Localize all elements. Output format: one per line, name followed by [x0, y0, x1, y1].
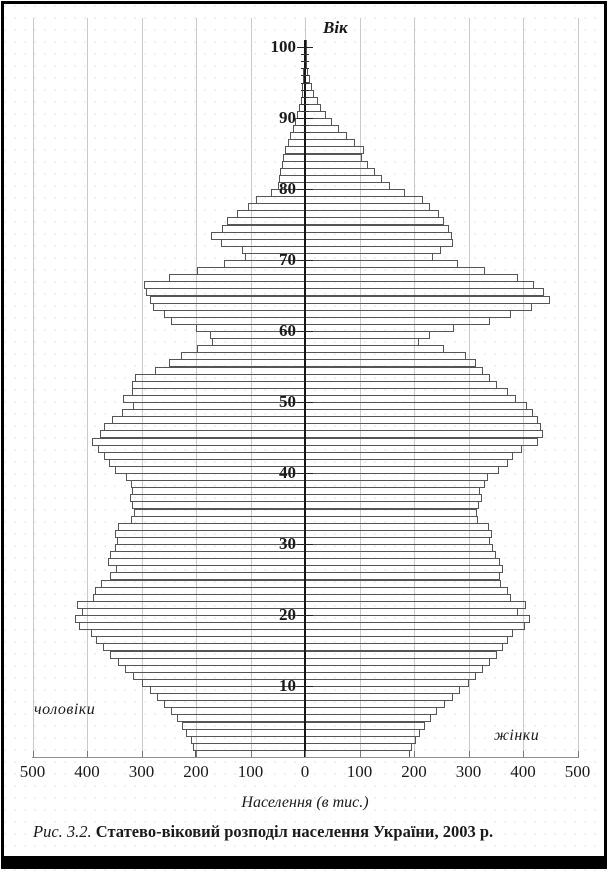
age-tick-label: 70	[246, 250, 296, 270]
women-bar	[305, 494, 482, 502]
men-bar	[110, 651, 305, 659]
women-bar	[305, 196, 423, 204]
women-bar	[305, 388, 508, 396]
age-decade-tick	[297, 331, 313, 332]
men-bar	[103, 643, 305, 651]
x-axis-tick	[578, 751, 579, 757]
men-bar	[91, 629, 305, 637]
men-bar	[193, 743, 305, 751]
x-axis-tick	[142, 751, 143, 757]
women-bar	[305, 530, 492, 538]
men-bar	[104, 423, 305, 431]
women-bar	[305, 622, 525, 630]
men-bar	[118, 658, 305, 666]
women-bar	[305, 487, 480, 495]
women-bar	[305, 345, 444, 353]
gridline	[578, 18, 579, 757]
men-bar	[93, 594, 305, 602]
figure-caption: Рис. 3.2. Статево-віковий розподіл насел…	[33, 821, 593, 842]
men-bar	[95, 587, 305, 595]
x-axis-tick	[251, 751, 252, 757]
age-year-tick	[301, 132, 309, 133]
women-bar	[305, 459, 508, 467]
women-bar	[305, 303, 532, 311]
women-bar	[305, 629, 513, 637]
women-bar	[305, 217, 444, 225]
women-bar	[305, 537, 490, 545]
x-tick-label: 200	[166, 763, 226, 781]
men-bar	[221, 239, 305, 247]
men-bar	[110, 572, 305, 580]
men-bar	[181, 352, 305, 360]
women-bar	[305, 310, 511, 318]
x-axis-tick	[469, 751, 470, 757]
women-bar	[305, 587, 508, 595]
men-bar	[144, 281, 305, 289]
x-tick-label: 300	[112, 763, 172, 781]
women-bar	[305, 154, 362, 162]
x-tick-label: 0	[275, 763, 335, 781]
women-bar	[305, 516, 478, 524]
age-year-tick	[301, 125, 309, 126]
women-bar	[305, 601, 526, 609]
age-tick-label: 60	[246, 321, 296, 341]
women-bar	[305, 523, 489, 531]
women-bar	[305, 572, 500, 580]
women-bar	[305, 743, 412, 751]
women-bar	[305, 118, 332, 126]
men-side-label: чоловіки	[34, 701, 95, 719]
women-bar	[305, 679, 469, 687]
men-bar	[132, 381, 305, 389]
age-year-tick	[301, 83, 309, 84]
women-bar	[305, 161, 368, 169]
women-bar	[305, 189, 405, 197]
x-tick-label: 500	[548, 763, 608, 781]
men-bar	[134, 509, 305, 517]
men-bar	[182, 722, 305, 730]
figure-caption-text: Статево-віковий розподіл населення Украї…	[96, 822, 493, 841]
women-bar	[305, 736, 416, 744]
men-bar	[285, 146, 305, 154]
men-bar	[100, 430, 305, 438]
women-bar	[305, 466, 499, 474]
women-bar	[305, 132, 347, 140]
age-year-tick	[301, 54, 309, 55]
age-tick-label: 90	[246, 108, 296, 128]
x-axis-baseline	[32, 757, 579, 758]
age-axis-line	[304, 40, 306, 757]
women-bar	[305, 317, 490, 325]
women-bar	[305, 686, 460, 694]
age-decade-tick	[297, 47, 313, 48]
men-bar	[197, 345, 305, 353]
women-bar	[305, 359, 476, 367]
women-bar	[305, 338, 419, 346]
age-year-tick	[301, 104, 309, 105]
women-bar	[305, 707, 437, 715]
age-tick-label: 40	[246, 463, 296, 483]
women-bar	[305, 374, 490, 382]
men-bar	[248, 203, 305, 211]
men-bar	[135, 374, 305, 382]
men-bar	[177, 714, 305, 722]
men-bar	[112, 416, 305, 424]
age-decade-tick	[297, 402, 313, 403]
women-bar	[305, 331, 430, 339]
age-decade-tick	[297, 118, 313, 119]
men-bar	[211, 232, 305, 240]
women-bar	[305, 445, 522, 453]
women-bar	[305, 714, 431, 722]
age-decade-tick	[297, 260, 313, 261]
women-bar	[305, 693, 453, 701]
women-bar	[305, 636, 508, 644]
x-axis-tick	[414, 751, 415, 757]
women-bar	[305, 352, 466, 360]
women-bar	[305, 139, 355, 147]
age-year-tick	[301, 111, 309, 112]
men-bar	[164, 700, 305, 708]
men-bar	[96, 636, 305, 644]
women-bar	[305, 168, 375, 176]
women-bar	[305, 509, 477, 517]
men-bar	[150, 296, 305, 304]
women-bar	[305, 473, 488, 481]
age-tick-label: 50	[246, 392, 296, 412]
men-bar	[131, 516, 305, 524]
age-decade-tick	[297, 189, 313, 190]
age-decade-tick	[297, 615, 313, 616]
x-axis-tick	[87, 751, 88, 757]
women-bar	[305, 203, 430, 211]
women-bar	[305, 232, 452, 240]
women-bar	[305, 146, 364, 154]
x-tick-label: 100	[330, 763, 390, 781]
men-bar	[164, 310, 305, 318]
women-bar	[305, 722, 425, 730]
x-axis-tick	[360, 751, 361, 757]
women-bar	[305, 175, 382, 183]
men-bar	[92, 438, 305, 446]
women-bar	[305, 580, 501, 588]
women-bar	[305, 281, 534, 289]
women-bar	[305, 658, 490, 666]
age-tick-label: 10	[246, 676, 296, 696]
men-bar	[282, 161, 305, 169]
x-axis-tick	[523, 751, 524, 757]
men-bar	[155, 367, 305, 375]
men-bar	[132, 501, 305, 509]
women-bar	[305, 395, 516, 403]
women-bar	[305, 253, 433, 261]
men-bar	[222, 225, 305, 233]
x-axis-tick	[33, 751, 34, 757]
women-bar	[305, 452, 513, 460]
age-tick-label: 100	[246, 37, 296, 57]
men-bar	[283, 154, 305, 162]
women-bar	[305, 182, 390, 190]
women-bar	[305, 125, 339, 133]
x-tick-label: 100	[221, 763, 281, 781]
women-bar	[305, 274, 518, 282]
men-bar	[290, 132, 305, 140]
women-bar	[305, 246, 441, 254]
women-bar	[305, 544, 493, 552]
women-bar	[305, 608, 518, 616]
men-bar	[101, 580, 305, 588]
gridline	[523, 18, 524, 757]
x-axis-tick	[305, 751, 306, 757]
women-bar	[305, 729, 420, 737]
women-bar	[305, 416, 538, 424]
men-bar	[191, 736, 305, 744]
women-bar	[305, 402, 527, 410]
age-tick-label: 80	[246, 179, 296, 199]
men-bar	[237, 210, 305, 218]
women-side-label: жінки	[494, 727, 539, 745]
women-bar	[305, 438, 538, 446]
men-bar	[171, 707, 305, 715]
x-tick-label: 200	[384, 763, 444, 781]
men-bar	[132, 487, 305, 495]
women-bar	[305, 367, 483, 375]
women-bar	[305, 225, 449, 233]
women-bar	[305, 643, 503, 651]
women-bar	[305, 288, 544, 296]
age-decade-tick	[297, 473, 313, 474]
women-bar	[305, 296, 550, 304]
x-tick-label: 400	[57, 763, 117, 781]
women-bar	[305, 665, 483, 673]
women-bar	[305, 501, 479, 509]
age-year-tick	[301, 75, 309, 76]
x-tick-label: 500	[3, 763, 63, 781]
women-bar	[305, 615, 530, 623]
x-axis-tick	[196, 751, 197, 757]
age-decade-tick	[297, 686, 313, 687]
women-bar	[305, 324, 454, 332]
x-tick-label: 400	[493, 763, 553, 781]
age-year-tick	[301, 61, 309, 62]
women-bar	[305, 651, 497, 659]
men-bar	[288, 139, 305, 147]
men-bar	[153, 303, 305, 311]
women-bar	[305, 260, 458, 268]
women-bar	[305, 480, 485, 488]
men-bar	[98, 445, 305, 453]
women-bar	[305, 409, 533, 417]
men-bar	[169, 359, 305, 367]
women-bar	[305, 430, 543, 438]
women-bar	[305, 381, 497, 389]
men-bar	[116, 565, 305, 573]
age-tick-label: 30	[246, 534, 296, 554]
men-bar	[186, 729, 305, 737]
women-bar	[305, 672, 476, 680]
men-bar	[169, 274, 305, 282]
age-year-tick	[301, 68, 309, 69]
women-bar	[305, 700, 445, 708]
men-bar	[104, 452, 305, 460]
age-decade-tick	[297, 544, 313, 545]
men-bar	[146, 288, 305, 296]
women-bar	[305, 239, 453, 247]
men-bar	[125, 665, 305, 673]
age-tick-label: 20	[246, 605, 296, 625]
men-bar	[280, 168, 305, 176]
age-year-tick	[301, 97, 309, 98]
women-bar	[305, 210, 439, 218]
women-bar	[305, 423, 541, 431]
men-bar	[130, 494, 305, 502]
men-bar	[108, 558, 305, 566]
figure-number: Рис. 3.2.	[33, 822, 92, 841]
age-axis-label: Вік	[323, 18, 348, 38]
women-bar	[305, 594, 511, 602]
women-bar	[305, 551, 496, 559]
women-bar	[305, 565, 503, 573]
scanned-figure-page: 1020304050607080901005004003002001000100…	[0, 0, 609, 873]
women-bar	[305, 558, 500, 566]
men-bar	[227, 217, 305, 225]
gridline	[87, 18, 88, 757]
x-tick-label: 300	[439, 763, 499, 781]
age-year-tick	[301, 90, 309, 91]
gridline	[33, 18, 34, 757]
men-bar	[118, 523, 305, 531]
women-bar	[305, 267, 485, 275]
x-axis-title: Населення (в тис.)	[150, 794, 460, 812]
